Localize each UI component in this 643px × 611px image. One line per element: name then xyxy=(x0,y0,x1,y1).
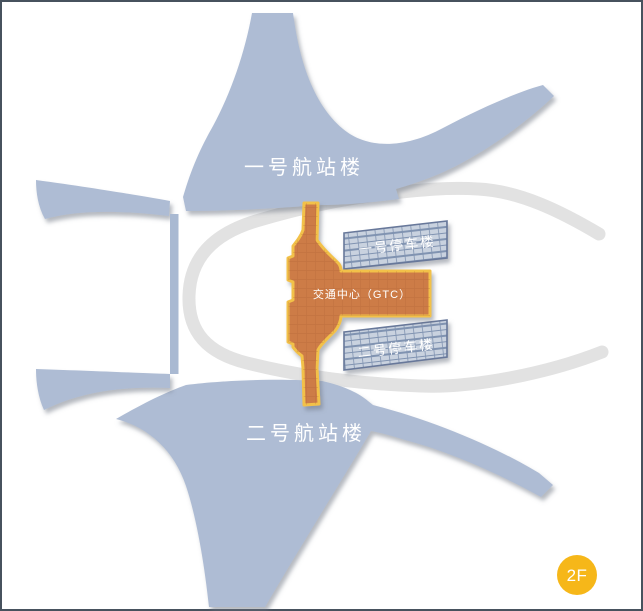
gtc-label: 交通中心（GTC） xyxy=(313,287,411,301)
airport-map-svg: 一号航站楼 二号航站楼 一号停车楼 二号停车楼 交通中心（GTC） 2F xyxy=(0,0,643,611)
floor-badge-label: 2F xyxy=(567,566,588,585)
terminal-connector xyxy=(170,214,179,374)
airport-layout-map: 一号航站楼 二号航站楼 一号停车楼 二号停车楼 交通中心（GTC） 2F xyxy=(0,0,643,611)
floor-badge: 2F xyxy=(557,555,597,595)
terminal-1-label: 一号航站楼 xyxy=(244,156,364,179)
terminal-2-label: 二号航站楼 xyxy=(246,422,366,445)
